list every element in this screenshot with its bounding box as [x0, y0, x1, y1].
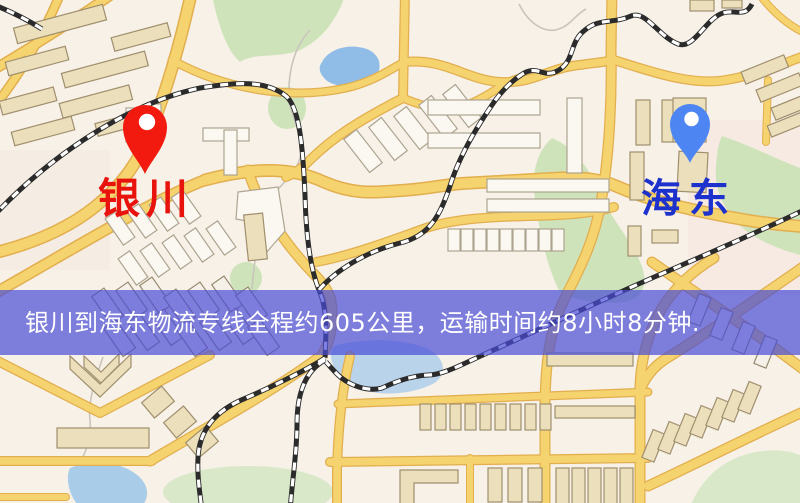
route-map: 银川 海东 银川到海东物流专线全程约605公里，运输时间约8小时8分钟.: [0, 0, 800, 503]
route-info-text: 银川到海东物流专线全程约605公里，运输时间约8小时8分钟.: [25, 311, 700, 335]
map-image: 银川 海东: [0, 0, 800, 503]
destination-pin-hole: [684, 112, 698, 126]
origin-pin-hole: [139, 114, 155, 130]
route-info-banner: 银川到海东物流专线全程约605公里，运输时间约8小时8分钟.: [0, 290, 800, 355]
origin-label: 银川: [98, 174, 194, 223]
destination-label: 海东: [641, 176, 737, 222]
